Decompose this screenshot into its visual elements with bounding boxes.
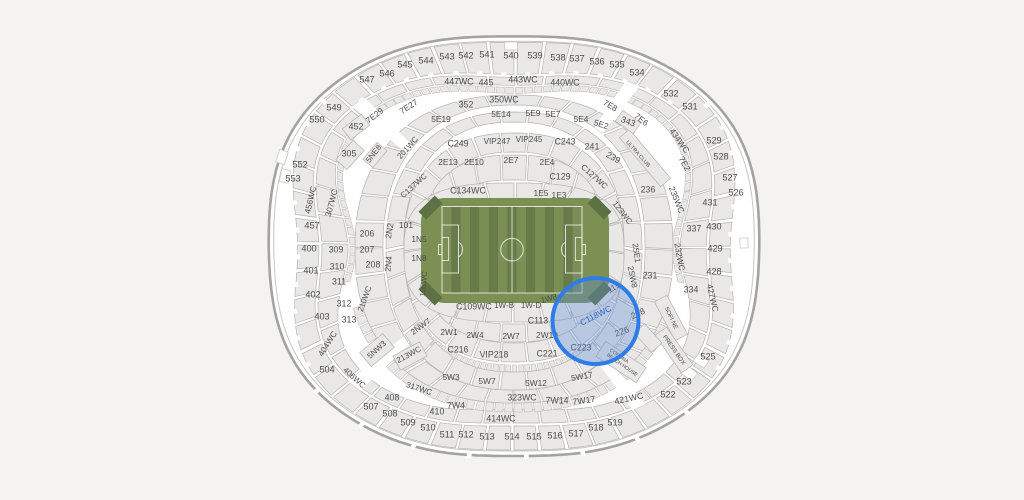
svg-text:440WC: 440WC: [550, 77, 580, 87]
svg-text:337: 337: [687, 223, 702, 233]
svg-text:544: 544: [418, 55, 433, 65]
svg-text:400: 400: [301, 243, 316, 253]
svg-text:C221: C221: [536, 348, 557, 358]
svg-text:408: 408: [385, 392, 400, 402]
svg-text:410: 410: [430, 406, 445, 416]
svg-text:513: 513: [479, 431, 494, 441]
svg-text:525: 525: [700, 351, 715, 361]
svg-text:541: 541: [479, 49, 494, 59]
svg-text:5E19: 5E19: [431, 114, 451, 124]
svg-text:5E14: 5E14: [491, 109, 511, 119]
svg-text:547: 547: [359, 74, 374, 84]
svg-text:311: 311: [332, 276, 346, 286]
svg-text:529: 529: [706, 135, 721, 145]
svg-text:7W14: 7W14: [546, 395, 569, 405]
svg-text:C134WC: C134WC: [450, 185, 486, 195]
svg-text:241: 241: [585, 141, 600, 151]
svg-text:536: 536: [589, 56, 604, 66]
svg-text:350WC: 350WC: [489, 94, 519, 104]
svg-text:428: 428: [706, 266, 721, 276]
svg-text:543: 543: [439, 51, 454, 61]
svg-text:517: 517: [568, 428, 583, 438]
svg-text:C129: C129: [549, 171, 570, 181]
svg-text:522: 522: [660, 389, 675, 399]
svg-text:514: 514: [504, 431, 519, 441]
svg-text:5E7: 5E7: [546, 109, 561, 119]
svg-text:542: 542: [458, 50, 473, 60]
svg-text:207: 207: [360, 244, 375, 254]
svg-text:352: 352: [459, 99, 474, 109]
svg-text:504: 504: [319, 364, 334, 374]
svg-text:552: 552: [292, 159, 307, 169]
svg-text:2W7: 2W7: [502, 331, 520, 341]
svg-text:231: 231: [643, 270, 658, 280]
svg-text:507: 507: [363, 401, 378, 411]
svg-text:C113: C113: [528, 315, 548, 325]
svg-text:312: 312: [337, 298, 352, 308]
svg-text:2W1: 2W1: [440, 327, 458, 337]
svg-text:1N5: 1N5: [411, 234, 427, 244]
svg-text:527: 527: [722, 172, 737, 182]
svg-text:2E10: 2E10: [464, 157, 484, 167]
svg-text:519: 519: [607, 417, 622, 427]
svg-text:5W3: 5W3: [442, 372, 460, 382]
svg-text:546: 546: [379, 68, 394, 78]
svg-text:5E9: 5E9: [526, 108, 541, 118]
svg-text:532: 532: [663, 88, 678, 98]
svg-text:539: 539: [527, 50, 542, 60]
svg-text:1N8: 1N8: [411, 253, 427, 263]
svg-text:549: 549: [326, 102, 341, 112]
svg-text:553: 553: [285, 173, 300, 183]
svg-text:2E13: 2E13: [438, 157, 458, 167]
svg-text:414WC: 414WC: [486, 413, 516, 423]
svg-text:1W-B: 1W-B: [494, 301, 514, 310]
svg-text:101: 101: [399, 220, 413, 230]
svg-text:5E4: 5E4: [574, 114, 589, 124]
svg-text:528: 528: [713, 151, 728, 161]
svg-text:508: 508: [382, 408, 397, 418]
svg-text:1E5: 1E5: [534, 188, 549, 198]
svg-text:2N4: 2N4: [382, 255, 394, 272]
svg-text:510: 510: [420, 422, 435, 432]
svg-text:430: 430: [706, 221, 721, 231]
svg-text:2E4: 2E4: [540, 157, 555, 167]
svg-text:309: 309: [329, 244, 344, 254]
svg-text:C249: C249: [447, 138, 468, 148]
svg-text:2W4: 2W4: [466, 330, 484, 340]
svg-text:7W4: 7W4: [447, 400, 465, 410]
svg-text:1W-D: 1W-D: [521, 301, 542, 310]
svg-text:516: 516: [547, 430, 562, 440]
svg-text:538: 538: [550, 52, 565, 62]
svg-text:537: 537: [569, 53, 584, 63]
svg-text:403: 403: [314, 311, 329, 321]
svg-text:C109WC: C109WC: [456, 301, 492, 311]
svg-text:401: 401: [303, 265, 318, 275]
svg-text:511: 511: [440, 429, 455, 439]
svg-text:5W12: 5W12: [525, 378, 547, 388]
svg-text:1E3: 1E3: [552, 190, 567, 200]
svg-text:431: 431: [702, 197, 717, 207]
svg-text:535: 535: [609, 59, 624, 69]
svg-text:509: 509: [400, 417, 415, 427]
svg-text:526: 526: [728, 187, 743, 197]
svg-text:429: 429: [707, 243, 722, 253]
svg-text:402: 402: [305, 289, 320, 299]
svg-text:323WC: 323WC: [507, 392, 537, 402]
svg-text:550: 550: [309, 114, 324, 124]
svg-text:305: 305: [342, 148, 357, 158]
svg-text:445: 445: [479, 77, 494, 87]
svg-text:VIP245: VIP245: [516, 135, 543, 144]
svg-text:545: 545: [397, 59, 412, 69]
svg-text:518: 518: [588, 422, 603, 432]
svg-text:2E7: 2E7: [504, 155, 519, 165]
svg-text:534: 534: [629, 67, 644, 77]
svg-text:443WC: 443WC: [508, 74, 538, 84]
svg-text:313: 313: [342, 314, 357, 324]
svg-text:VIP247: VIP247: [484, 137, 511, 146]
svg-text:VIP218: VIP218: [480, 349, 509, 359]
svg-text:512: 512: [458, 429, 473, 439]
svg-text:447WC: 447WC: [444, 76, 474, 86]
svg-text:206: 206: [360, 228, 375, 238]
svg-text:457: 457: [304, 220, 319, 230]
svg-text:C216: C216: [447, 344, 468, 354]
svg-text:236: 236: [641, 184, 656, 194]
svg-text:334: 334: [684, 284, 699, 294]
svg-text:540: 540: [503, 50, 518, 60]
svg-text:310: 310: [330, 261, 345, 271]
svg-text:452: 452: [349, 121, 364, 131]
svg-text:523: 523: [676, 376, 691, 386]
svg-text:5W7: 5W7: [478, 376, 496, 386]
svg-text:208: 208: [366, 259, 381, 269]
svg-text:C243: C243: [554, 136, 575, 146]
svg-text:531: 531: [682, 101, 697, 111]
svg-text:515: 515: [526, 431, 541, 441]
